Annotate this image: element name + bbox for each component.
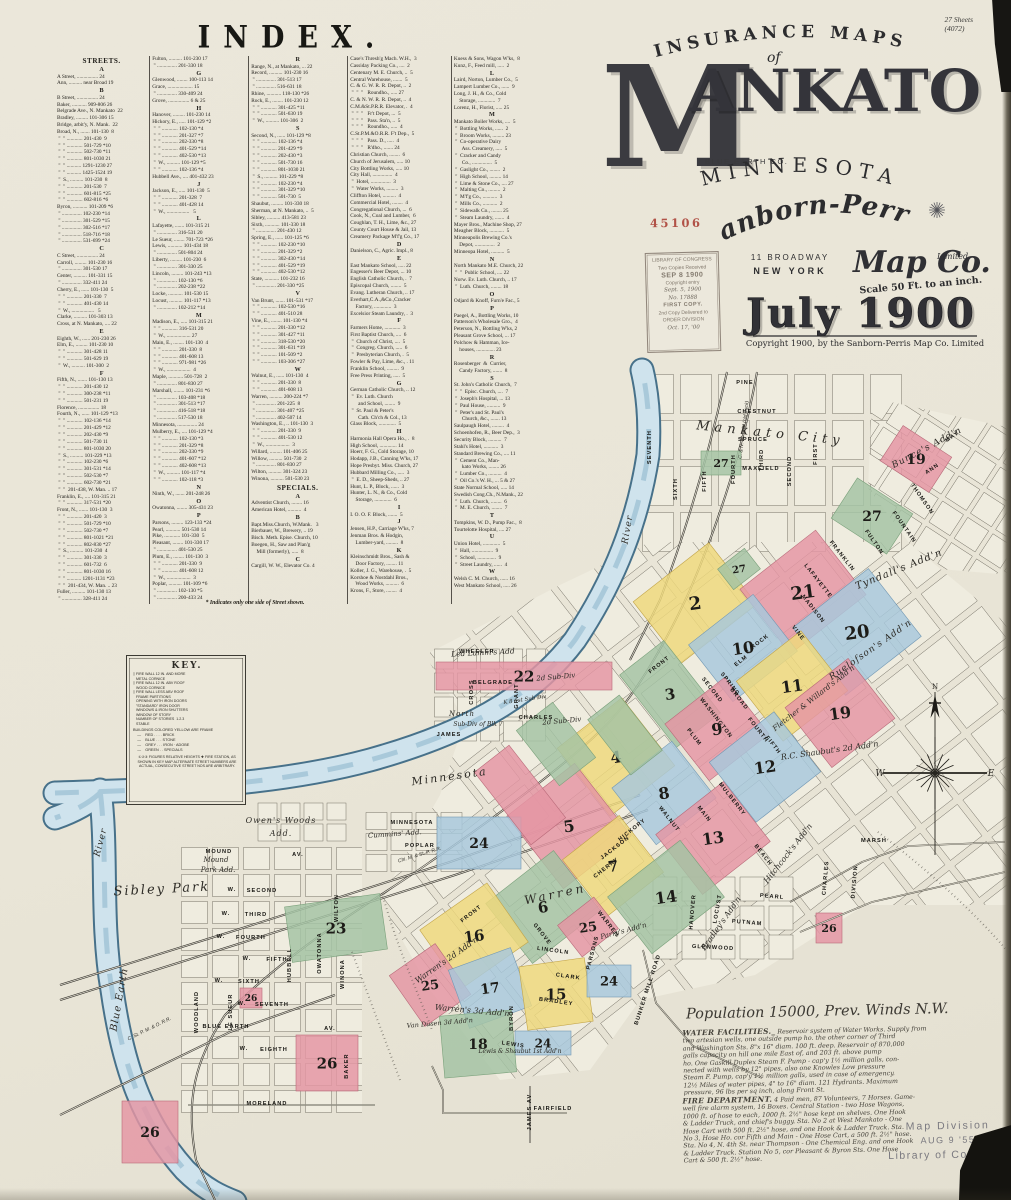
street-label-wilton: WILTON [334, 894, 340, 922]
street-label-w-: W. [243, 956, 252, 962]
street-label-av-: AV. [292, 852, 304, 858]
street-label-moreland: MORELAND [246, 1101, 287, 1107]
street-label-second: SECOND [787, 456, 793, 487]
svg-text:13: 13 [701, 827, 726, 849]
street-label-marsh: MARSH [861, 838, 887, 844]
street-label-grant: GRANT [514, 683, 520, 708]
script-label-owen-s-woods: Owen's Woods [246, 816, 317, 825]
street-label-cross: CROSS [469, 679, 475, 704]
street-label-james: JAMES [437, 732, 462, 738]
street-label-sixth: SIXTH [238, 979, 260, 985]
street-label-seventh: SEVENTH [647, 430, 653, 464]
street-label-woodland: WOODLAND [194, 991, 200, 1033]
street-label-mound: MOUND [206, 849, 233, 855]
railroad-label: C. St. P. M. & O. R.R. [127, 1016, 173, 1042]
street-label-third: THIRD [245, 912, 268, 918]
street-label-second: SECOND [247, 888, 278, 894]
street-label-baker: BAKER [344, 1053, 350, 1078]
street-label-fourth: FOURTH [731, 454, 737, 484]
script-label-mound: Mound [203, 856, 229, 864]
svg-text:N: N [932, 683, 938, 691]
svg-text:17: 17 [479, 980, 501, 999]
svg-text:26: 26 [821, 922, 837, 935]
water-facilities-note: WATER FACILITIES._ Reservoir system of W… [682, 1022, 1011, 1097]
svg-text:22: 22 [514, 667, 535, 685]
svg-text:W: W [875, 769, 885, 779]
street-label-eighth: EIGHTH [260, 1047, 288, 1053]
street-label-w-: W. [217, 934, 226, 940]
map-canvas: 2719272212010111932749128513761422241625… [0, 0, 1011, 1200]
street-label-le-sueur: LE SUEUR [228, 993, 234, 1030]
street-label-third: THIRD [759, 449, 765, 472]
street-label-winona: WINONA [340, 959, 346, 989]
script-label-lewis-shaubut-1st-add-n: Lewis & Shaubut 1st Add'n [477, 1048, 561, 1055]
key-title: KEY. [133, 661, 241, 671]
street-label-fairfield: FAIRFIELD [534, 1106, 573, 1112]
script-label-sub-div-of-blk-7: Sub-Div of Blk 7 [453, 721, 502, 728]
street-label-fourth: FOURTH [236, 935, 266, 941]
svg-text:12: 12 [753, 756, 778, 778]
svg-text:27: 27 [862, 509, 881, 525]
street-label-seventh: SEVENTH [255, 1002, 289, 1008]
svg-text:24: 24 [600, 975, 618, 990]
map-key-legend: KEY. ▯ FIRE WALL 12 IN. AND MORE METAL C… [126, 655, 246, 805]
svg-text:20: 20 [843, 621, 871, 645]
map-block-24: 24 [437, 817, 521, 869]
svg-text:E: E [987, 769, 995, 779]
street-label-pine: PINE [736, 380, 753, 386]
key-footer-notes: ①②③ FIGURES RELATIVE HEIGHTS ✚ FIRE STAT… [133, 755, 241, 769]
street-label-first: FIRST [813, 443, 819, 465]
svg-text:11: 11 [780, 675, 805, 697]
svg-text:27: 27 [731, 564, 746, 577]
street-label-byron: BYRON [509, 1005, 515, 1031]
svg-text:19: 19 [828, 702, 853, 724]
street-label-w-: W. [222, 911, 231, 917]
lc-stamp-division: Map Division [838, 1118, 1011, 1134]
street-label-belgrade: BELGRADE [473, 680, 513, 686]
street-label-james-av: JAMES AV [527, 1094, 533, 1131]
street-label-w-: W. [228, 887, 237, 893]
scan-edge-shadow [1002, 84, 1011, 1200]
street-label-hubbell: HUBBELL [287, 948, 293, 982]
key-color-legend: BUILDINGS COLORED YELLOW ARE FRAME — RED… [133, 728, 241, 753]
map-block-26: 26 [816, 913, 842, 943]
street-label-w-: W. [238, 1001, 247, 1007]
script-label-north: North [448, 710, 475, 718]
map-block-15: 15 [519, 958, 593, 1031]
street-label-owatonna: OWATONNA [317, 932, 323, 974]
map-block-26: 26 [122, 1101, 178, 1163]
street-label-fifth: FIFTH [702, 470, 708, 491]
street-label-blue-earth: BLUE EARTH [202, 1024, 249, 1030]
street-label-fifth: FIFTH [266, 957, 287, 963]
scan-bottom-shadow [0, 1188, 1011, 1200]
svg-text:24: 24 [469, 836, 489, 852]
sanborn-map-sheet: { "colors":{"pink":"#e495a3","yellow":"#… [0, 0, 1011, 1200]
svg-text:14: 14 [654, 886, 679, 908]
map-block-22: 22 [436, 662, 612, 690]
street-label-w-: W. [215, 978, 224, 984]
svg-text:25: 25 [578, 919, 598, 936]
key-symbol-lines: ▯ FIRE WALL 12 IN. AND MORE METAL CORNIC… [133, 672, 241, 726]
street-label-sixth: SIXTH [673, 478, 679, 500]
svg-text:26: 26 [317, 1054, 338, 1072]
street-label-minnesota: MINNESOTA [390, 820, 433, 826]
street-label-w-: W. [240, 1046, 249, 1052]
svg-text:27: 27 [713, 457, 728, 470]
svg-text:26: 26 [140, 1125, 159, 1141]
map-block-24: 24 [587, 965, 631, 997]
script-label-park-add-: Park Add. [200, 866, 236, 874]
street-label-av-: AV. [324, 1026, 336, 1032]
script-label-add-: Add. [269, 829, 293, 838]
